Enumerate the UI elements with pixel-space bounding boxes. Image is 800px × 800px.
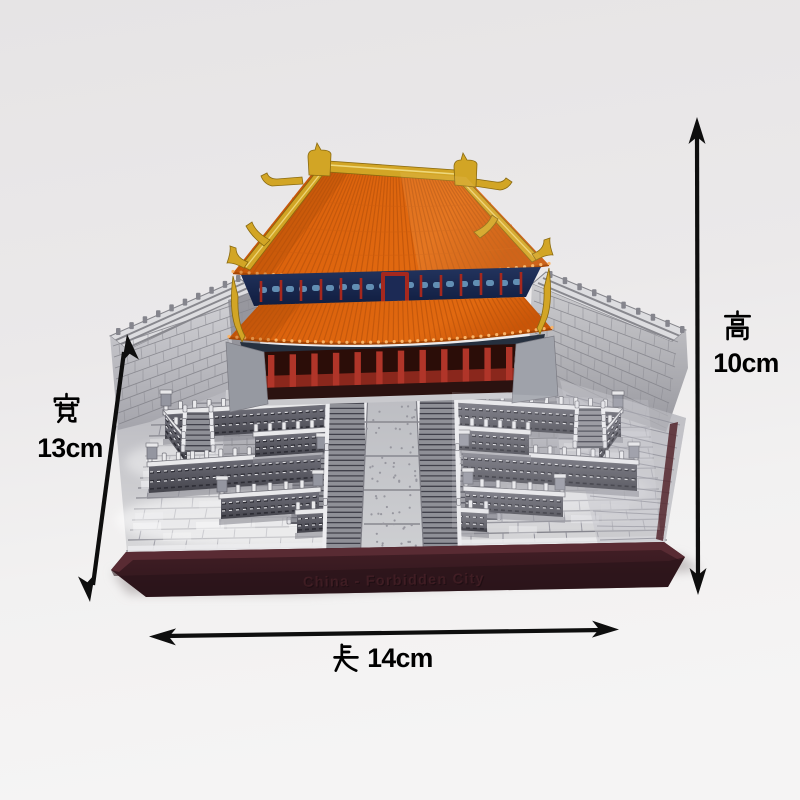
svg-text:10cm: 10cm [713, 348, 778, 378]
svg-text:13cm: 13cm [37, 433, 102, 463]
svg-text:14cm: 14cm [367, 643, 432, 673]
